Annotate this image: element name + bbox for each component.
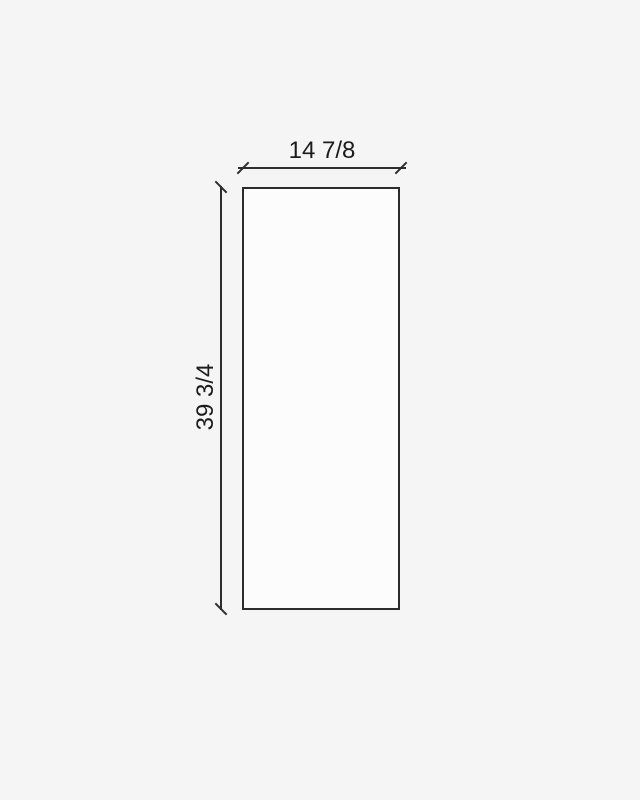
drawing-canvas: 14 7/8 39 3/4 [0,0,640,800]
height-dimension-line [220,186,222,610]
width-dimension-label: 14 7/8 [242,138,402,164]
width-dimension-line [238,167,406,169]
panel-outline-rectangle [242,187,400,610]
height-dimension-label: 39 3/4 [193,337,219,457]
